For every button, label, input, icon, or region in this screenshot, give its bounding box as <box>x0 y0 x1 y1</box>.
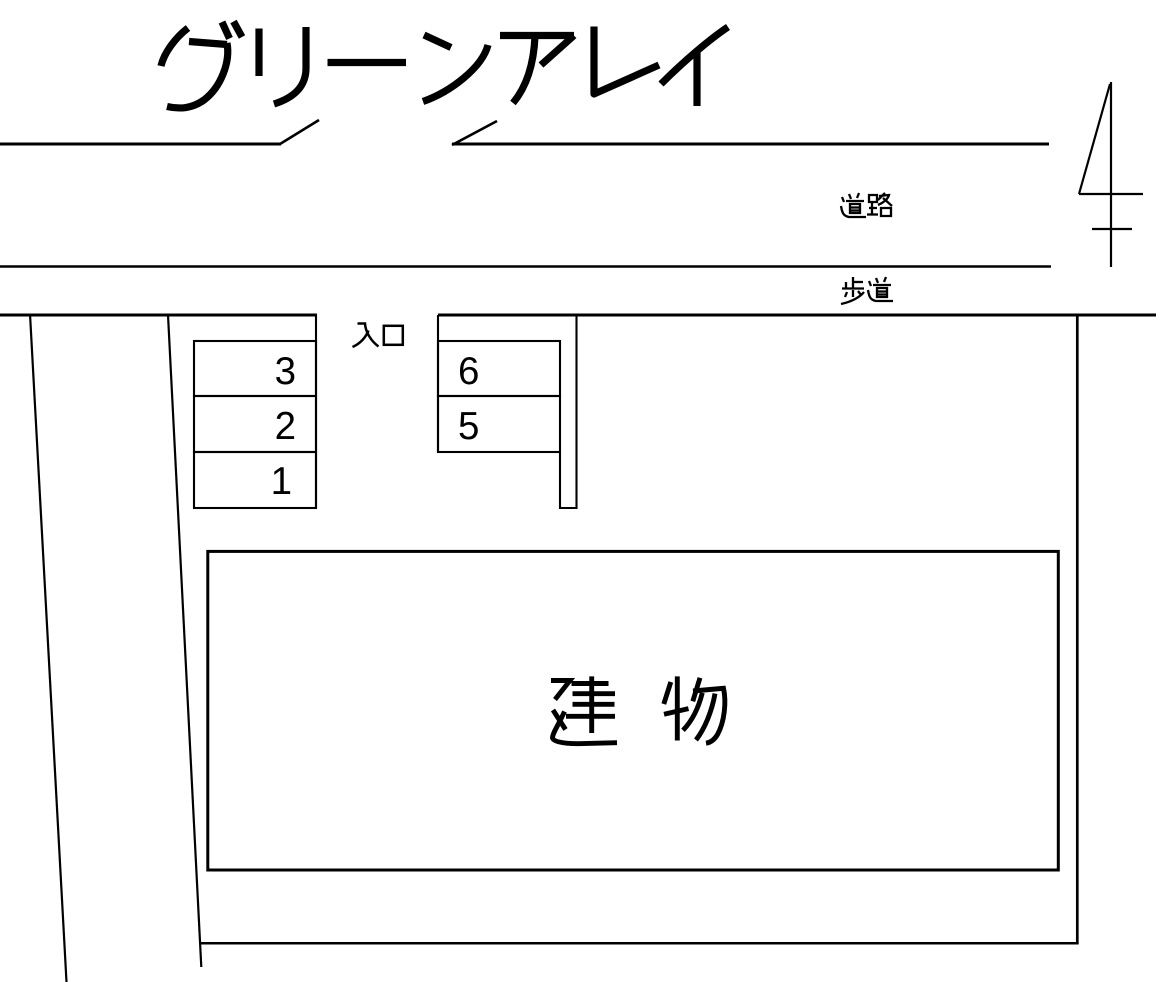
svg-text:6: 6 <box>458 350 479 393</box>
svg-text:5: 5 <box>458 405 479 448</box>
svg-text:2: 2 <box>275 405 296 448</box>
svg-text:3: 3 <box>275 350 296 393</box>
svg-text:1: 1 <box>271 460 292 503</box>
